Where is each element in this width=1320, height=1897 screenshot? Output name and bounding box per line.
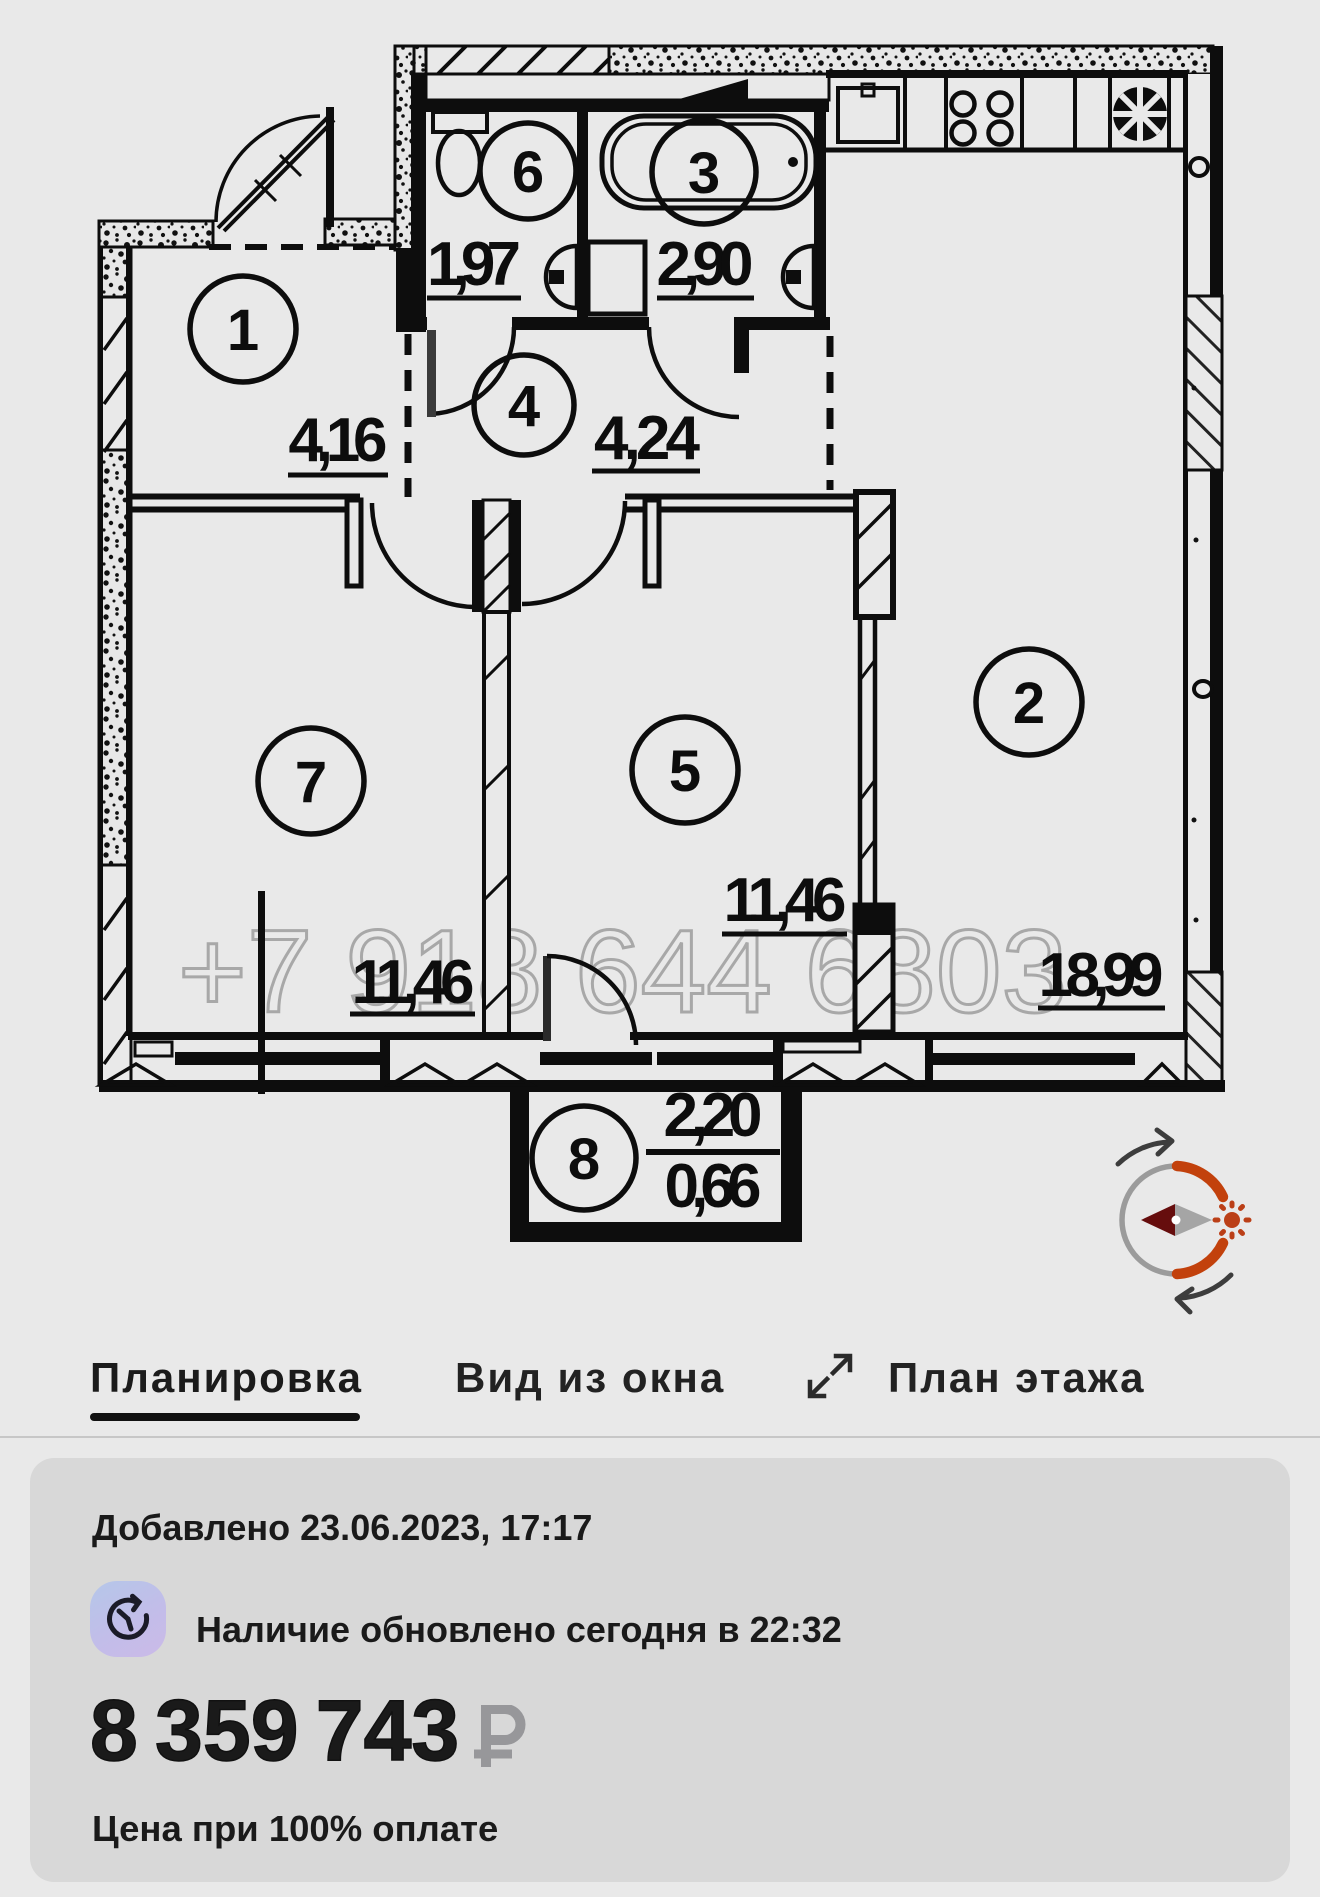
svg-text:+7 918 644 6803: +7 918 644 6803: [178, 906, 1067, 1038]
svg-text:2,90: 2,90: [657, 230, 754, 299]
svg-text:2,20: 2,20: [664, 1081, 763, 1150]
svg-text:0,66: 0,66: [665, 1152, 762, 1221]
svg-text:11,46: 11,46: [724, 866, 847, 935]
svg-text:4: 4: [508, 374, 540, 439]
svg-text:3: 3: [688, 141, 720, 206]
svg-text:11,46: 11,46: [352, 948, 475, 1017]
svg-text:4,16: 4,16: [289, 406, 388, 475]
svg-text:1,97: 1,97: [427, 230, 521, 299]
svg-text:6: 6: [512, 140, 544, 205]
svg-text:5: 5: [669, 739, 701, 804]
svg-text:18,99: 18,99: [1039, 941, 1164, 1010]
svg-text:1: 1: [227, 298, 259, 363]
svg-text:2: 2: [1013, 671, 1045, 736]
svg-text:8: 8: [568, 1127, 600, 1192]
svg-text:7: 7: [295, 750, 327, 815]
svg-text:4,24: 4,24: [594, 404, 701, 473]
